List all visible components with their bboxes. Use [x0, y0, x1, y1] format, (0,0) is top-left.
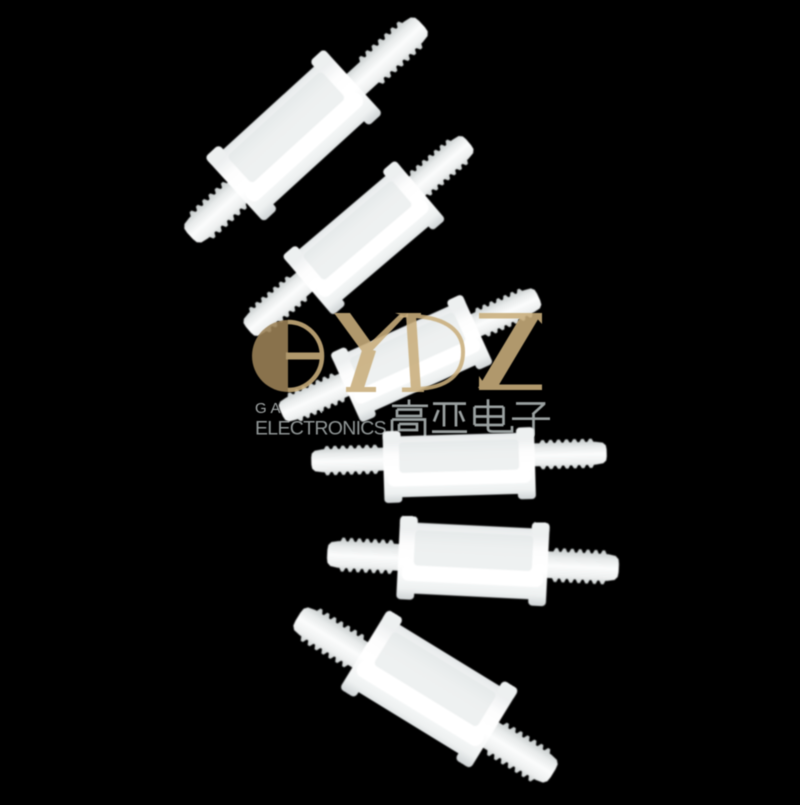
- svg-text:ELECTRONICS: ELECTRONICS: [255, 418, 387, 440]
